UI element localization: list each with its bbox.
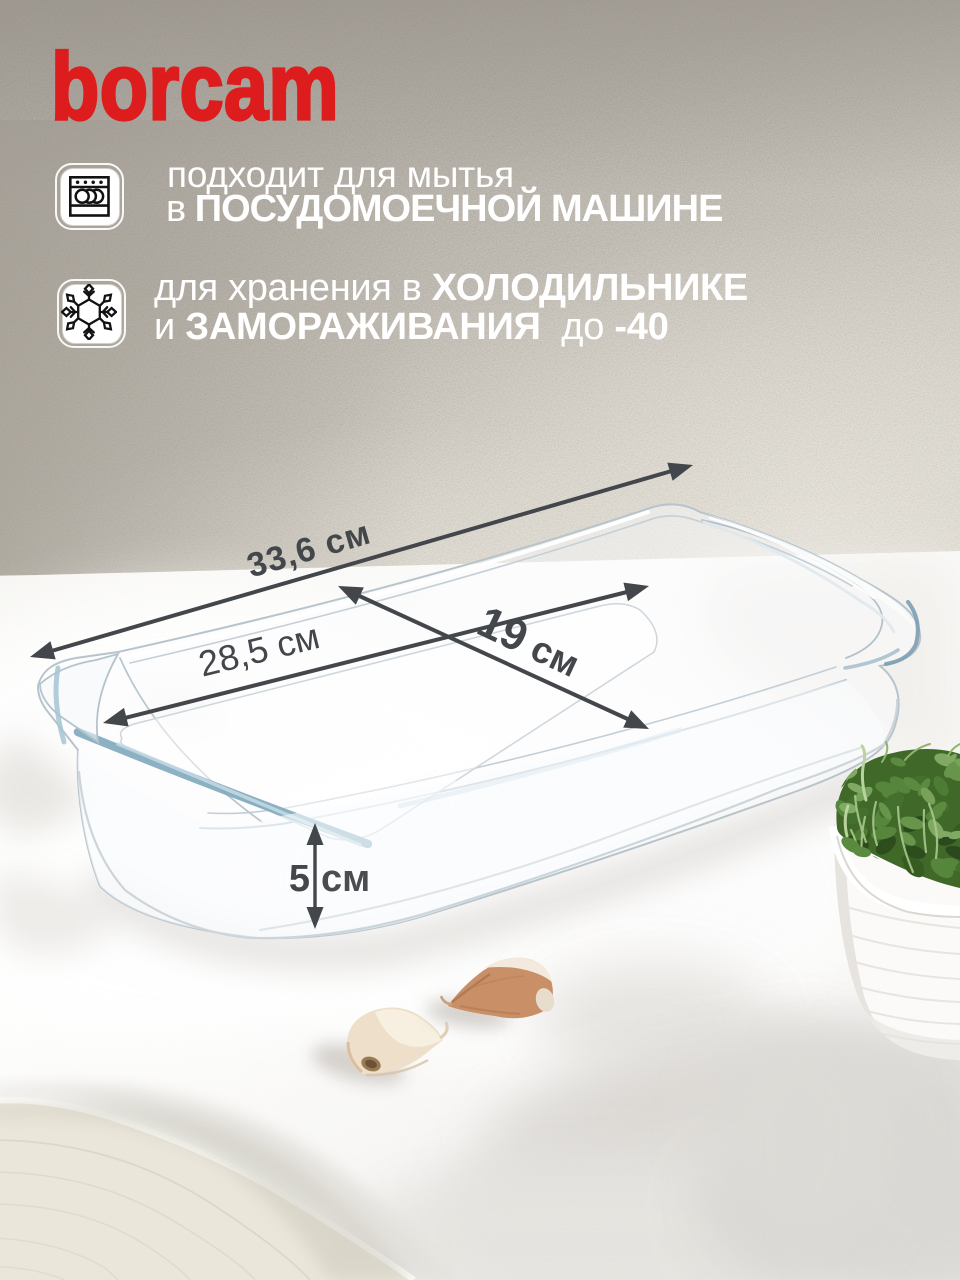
- svg-text:см: см: [321, 858, 370, 900]
- svg-text:5: 5: [289, 858, 310, 900]
